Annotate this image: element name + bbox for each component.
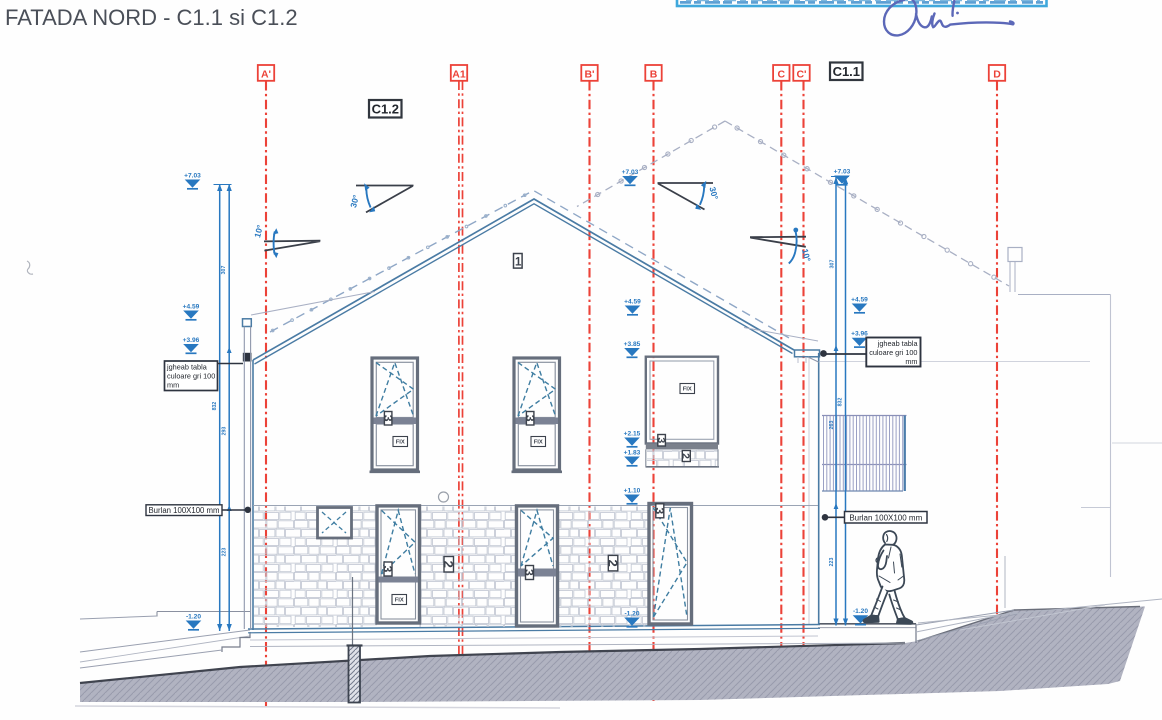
svg-text:FIX: FIX — [534, 440, 543, 446]
svg-text:C1.1: C1.1 — [833, 64, 860, 79]
svg-text:culoare gri 100: culoare gri 100 — [869, 348, 917, 357]
svg-text:+4.59: +4.59 — [851, 296, 868, 303]
svg-text:832: 832 — [838, 398, 844, 407]
svg-text:2: 2 — [605, 560, 620, 567]
svg-text:jgheab tabla: jgheab tabla — [877, 339, 919, 348]
svg-text:B: B — [650, 69, 658, 81]
svg-text:3: 3 — [522, 569, 536, 576]
svg-text:263: 263 — [829, 421, 835, 430]
svg-text:+3.85: +3.85 — [624, 341, 641, 348]
svg-text:C: C — [778, 69, 786, 81]
svg-text:223: 223 — [222, 548, 228, 557]
svg-text:Burlan 100X100 mm: Burlan 100X100 mm — [148, 506, 219, 515]
svg-text:223: 223 — [829, 558, 835, 567]
svg-text:307: 307 — [830, 260, 836, 269]
svg-text:-1.20: -1.20 — [853, 608, 868, 615]
svg-text:+3.96: +3.96 — [183, 337, 200, 344]
svg-text:FIX: FIX — [395, 598, 404, 604]
svg-text:+1.83: +1.83 — [624, 449, 641, 456]
svg-text:3: 3 — [381, 415, 395, 422]
svg-text:jgheab tabla: jgheab tabla — [166, 363, 208, 372]
svg-text:1: 1 — [515, 257, 522, 269]
svg-text:FATADA NORD - C1.1 si C1.2: FATADA NORD - C1.1 si C1.2 — [5, 5, 298, 30]
svg-text:-1.20: -1.20 — [624, 610, 639, 617]
svg-text:C1.2: C1.2 — [372, 102, 399, 117]
svg-text:B': B' — [584, 69, 594, 81]
svg-text:832: 832 — [212, 402, 218, 411]
svg-text:+2.15: +2.15 — [624, 430, 641, 437]
svg-text:+7.03: +7.03 — [834, 168, 851, 175]
svg-text:mm: mm — [905, 357, 917, 366]
svg-text:3: 3 — [652, 507, 666, 514]
svg-text:3: 3 — [381, 566, 395, 573]
svg-text:A1: A1 — [452, 69, 466, 81]
svg-text:FIX: FIX — [396, 440, 405, 446]
svg-text:FIX: FIX — [683, 387, 692, 393]
svg-text:A': A' — [261, 69, 271, 81]
svg-text:+4.59: +4.59 — [624, 298, 641, 305]
svg-text:2: 2 — [441, 561, 456, 568]
svg-text:+4.59: +4.59 — [183, 303, 200, 310]
svg-text:C': C' — [796, 69, 806, 81]
svg-text:D: D — [993, 69, 1001, 81]
svg-text:3: 3 — [655, 437, 667, 443]
svg-text:Burlan 100X100 mm: Burlan 100X100 mm — [849, 513, 922, 522]
svg-text:293: 293 — [222, 427, 228, 436]
svg-text:culoare gri 100: culoare gri 100 — [167, 372, 215, 381]
svg-text:3: 3 — [523, 415, 537, 422]
svg-text:+7.03: +7.03 — [184, 172, 201, 179]
svg-text:+1.10: +1.10 — [624, 487, 641, 494]
svg-text:307: 307 — [221, 266, 227, 275]
svg-text:mm: mm — [167, 381, 179, 390]
svg-text:2: 2 — [680, 453, 692, 459]
svg-text:+7.03: +7.03 — [622, 169, 639, 176]
svg-text:-1.20: -1.20 — [186, 613, 201, 620]
